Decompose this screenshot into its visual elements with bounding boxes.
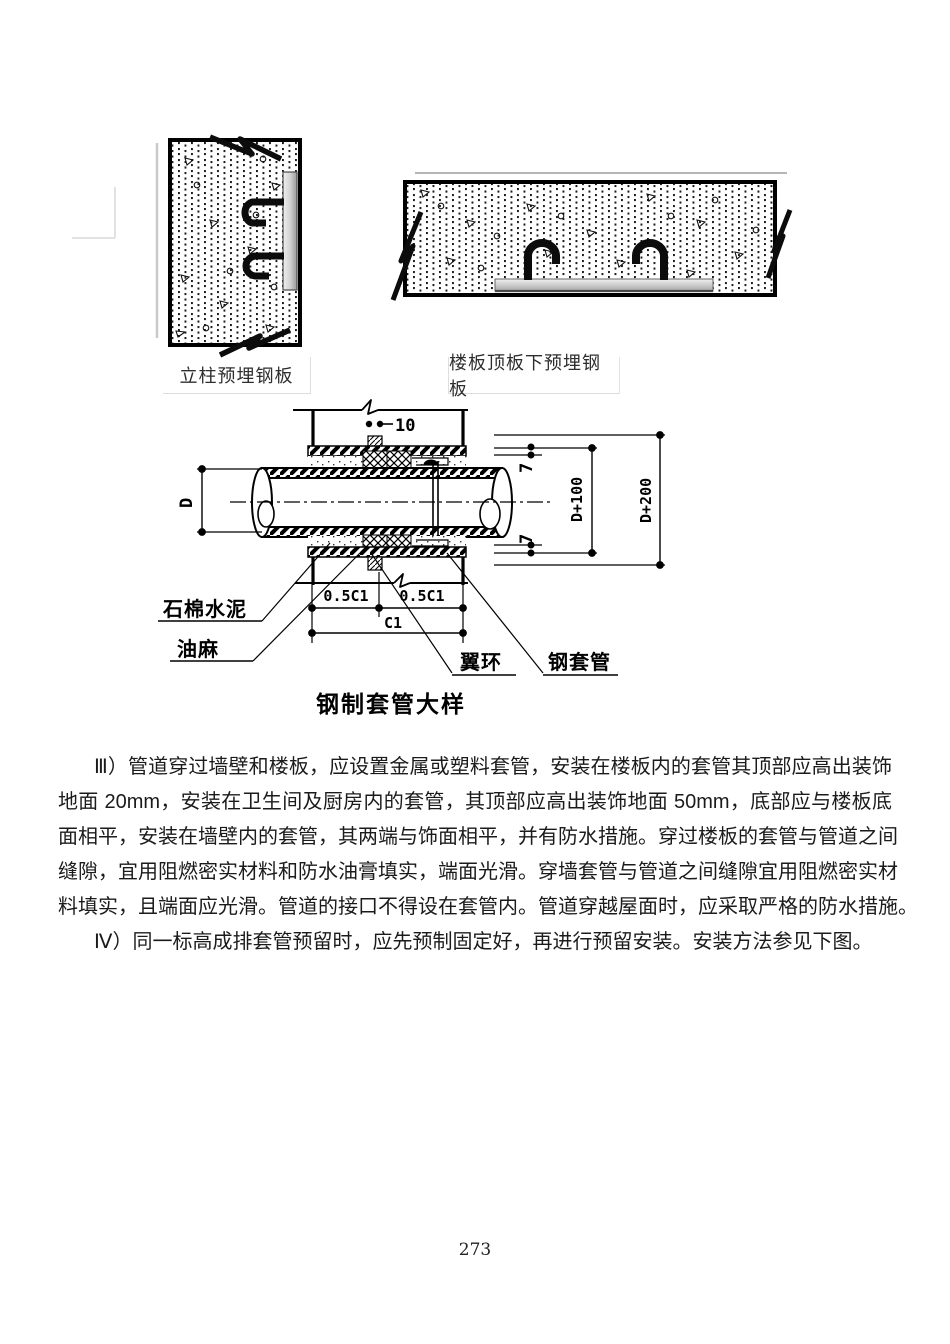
figure-caption-slab-plate: 楼板顶板下预埋钢板 xyxy=(448,357,620,394)
embedded-steel-plate xyxy=(495,279,713,291)
dim-label-d: D xyxy=(177,498,197,508)
steel-sleeve-detail-drawing: 10 xyxy=(150,395,680,725)
document-page: 立柱预埋钢板 xyxy=(0,0,950,1344)
dim-label-c1: C1 xyxy=(384,614,402,632)
paragraph-line: 缝隙，宜用阻燃密实材料和防水油膏填实，端面光滑。穿墙套管与管道之间缝隙宜用阻燃密… xyxy=(58,855,892,890)
dim-label-weld-top: 7 xyxy=(517,463,537,473)
dim-label-half-c1-right: 0.5C1 xyxy=(399,587,444,605)
dim-ring-thickness: 10 xyxy=(366,416,416,436)
paragraph-line: Ⅲ）管道穿过墙壁和楼板，应设置金属或塑料套管，安装在楼板内的套管其顶部应高出装饰 xyxy=(58,750,892,785)
paragraph-line: Ⅳ）同一标高成排套管预留时，应先预制固定好，再进行预留安装。安装方法参见下图。 xyxy=(58,925,892,960)
label-oakum: 油麻 xyxy=(177,637,219,661)
paragraph-line: 料填实，且端面应光滑。管道的接口不得设在套管内。管道穿越屋面时，应采取严格的防水… xyxy=(58,890,892,925)
sleeve-top xyxy=(308,446,466,469)
body-text: Ⅲ）管道穿过墙壁和楼板，应设置金属或塑料套管，安装在楼板内的套管其顶部应高出装饰… xyxy=(58,750,892,960)
concrete-column-section xyxy=(170,140,300,345)
dim-label-d200: D+200 xyxy=(637,478,655,523)
paragraph-line: 面相平，安装在墙壁内的套管，其两端与饰面相平，并有防水措施。穿过楼板的套管与管道… xyxy=(58,820,892,855)
pipe xyxy=(230,468,550,537)
slab-embedded-plate-diagram xyxy=(385,160,795,310)
embedded-steel-plate xyxy=(283,172,297,290)
label-wing-ring: 翼环 xyxy=(459,651,502,674)
column-embedded-plate-diagram xyxy=(20,125,350,370)
page-number: 273 xyxy=(0,1240,950,1260)
dim-label-half-c1-left: 0.5C1 xyxy=(323,587,368,605)
paragraph-line: 地面 20mm，安装在卫生间及厨房内的套管，其顶部应高出装饰地面 50mm，底部… xyxy=(58,785,892,820)
dim-label-10: 10 xyxy=(395,416,415,436)
dim-label-weld-bottom: 7 xyxy=(517,534,537,544)
sleeve-bottom xyxy=(308,535,466,557)
dim-label-d100: D+100 xyxy=(568,477,586,522)
faint-guide-lines xyxy=(72,143,157,338)
label-steel-sleeve: 钢套管 xyxy=(548,650,611,674)
label-asbestos-cement: 石棉水泥 xyxy=(162,597,247,621)
concrete-slab-section xyxy=(405,182,775,295)
figure-caption-column-plate: 立柱预埋钢板 xyxy=(163,357,311,394)
drawing-title: 钢制套管大样 xyxy=(316,691,466,717)
